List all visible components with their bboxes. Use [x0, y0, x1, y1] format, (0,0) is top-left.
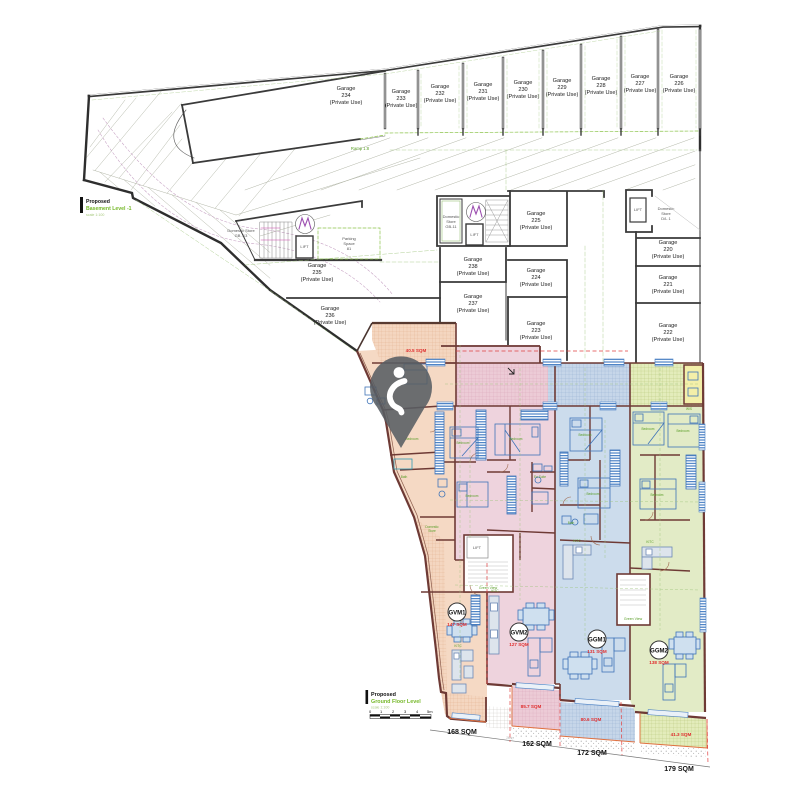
svg-text:Garage: Garage	[527, 321, 546, 327]
svg-text:127 SQM: 127 SQM	[509, 642, 529, 647]
svg-text:80.6 SQM: 80.6 SQM	[581, 717, 602, 722]
svg-text:(Private Use): (Private Use)	[424, 98, 457, 104]
svg-text:Ground Floor Level: Ground Floor Level	[371, 699, 421, 705]
svg-text:GVM1: GVM1	[448, 611, 466, 617]
svg-text:Ramp 1:8: Ramp 1:8	[351, 146, 370, 151]
svg-text:W/S: W/S	[686, 407, 692, 411]
svg-text:LIFT: LIFT	[470, 232, 479, 237]
svg-text:Garage: Garage	[659, 275, 678, 281]
svg-text:(Private Use): (Private Use)	[520, 335, 553, 341]
svg-text:Bedroom: Bedroom	[587, 492, 600, 496]
svg-text:234: 234	[341, 93, 350, 99]
svg-text:(Private Use): (Private Use)	[457, 308, 490, 314]
svg-text:Bedroom: Bedroom	[510, 437, 523, 441]
svg-text:229: 229	[557, 85, 566, 91]
svg-text:GB-11: GB-11	[445, 224, 457, 229]
svg-text:Store: Store	[428, 529, 436, 533]
svg-text:235: 235	[312, 270, 321, 276]
svg-text:GVM2: GVM2	[510, 631, 528, 637]
svg-text:(Private Use): (Private Use)	[314, 320, 347, 326]
svg-text:0: 0	[369, 709, 372, 714]
svg-text:131 SQM: 131 SQM	[587, 649, 607, 654]
svg-text:221: 221	[663, 282, 672, 288]
svg-text:Garage: Garage	[670, 74, 689, 80]
svg-text:Garage: Garage	[527, 211, 546, 217]
svg-text:(Private Use): (Private Use)	[520, 282, 553, 288]
svg-text:226: 226	[674, 81, 683, 87]
svg-text:222: 222	[663, 330, 672, 336]
svg-text:KITC: KITC	[646, 540, 654, 544]
svg-text:Garage: Garage	[514, 80, 533, 86]
svg-text:236: 236	[325, 313, 334, 319]
svg-text:16.97: 16.97	[506, 736, 515, 741]
svg-text:En Suite: En Suite	[534, 475, 546, 479]
svg-text:Garage: Garage	[659, 323, 678, 329]
svg-text:Garage: Garage	[474, 82, 493, 88]
svg-text:(Private Use): (Private Use)	[467, 96, 500, 102]
svg-text:Garage: Garage	[337, 86, 356, 92]
svg-text:2: 2	[392, 709, 395, 714]
svg-text:Garage: Garage	[553, 78, 572, 84]
svg-text:5m: 5m	[427, 709, 433, 714]
svg-text:238: 238	[468, 264, 477, 270]
svg-text:(Private Use): (Private Use)	[301, 277, 334, 283]
svg-text:(Private Use): (Private Use)	[520, 225, 553, 231]
svg-text:(Private Use): (Private Use)	[507, 94, 540, 100]
svg-text:230: 230	[518, 87, 527, 93]
svg-text:Garage: Garage	[592, 76, 611, 82]
svg-text:Proposed: Proposed	[371, 692, 396, 698]
svg-text:Garage: Garage	[659, 240, 678, 246]
svg-text:(Private Use): (Private Use)	[457, 271, 490, 277]
svg-text:(Private Use): (Private Use)	[652, 254, 685, 260]
svg-text:138 SQM: 138 SQM	[649, 660, 669, 665]
svg-text:KITC: KITC	[573, 539, 581, 543]
svg-text:(Private Use): (Private Use)	[652, 289, 685, 295]
svg-text:Bedroom: Bedroom	[677, 429, 690, 433]
svg-text:168 SQM: 168 SQM	[447, 729, 477, 736]
svg-text:Garage: Garage	[392, 89, 411, 95]
svg-text:231: 231	[478, 89, 487, 95]
svg-text:Bedroom: Bedroom	[642, 427, 655, 431]
svg-text:81: 81	[347, 246, 352, 251]
svg-text:Garage: Garage	[464, 294, 483, 300]
svg-text:85.7 SQM: 85.7 SQM	[521, 704, 542, 709]
svg-text:GB -13: GB -13	[235, 233, 248, 238]
svg-text:Bath: Bath	[568, 521, 575, 525]
svg-text:Garage: Garage	[527, 268, 546, 274]
svg-text:Basement Level -1: Basement Level -1	[86, 206, 132, 212]
svg-text:(Private Use): (Private Use)	[385, 103, 418, 109]
svg-text:41.3 SQM: 41.3 SQM	[671, 732, 692, 737]
svg-text:(Private Use): (Private Use)	[663, 88, 696, 94]
svg-text:3: 3	[404, 709, 407, 714]
svg-text:GGM2: GGM2	[650, 649, 668, 655]
svg-text:232: 232	[435, 91, 444, 97]
svg-text:Bath: Bath	[401, 475, 408, 479]
svg-text:Garage: Garage	[321, 306, 340, 312]
svg-text:(Private Use): (Private Use)	[330, 100, 363, 106]
svg-text:Bedroom: Bedroom	[457, 441, 470, 445]
svg-text:223: 223	[531, 328, 540, 334]
svg-text:Bedroom: Bedroom	[651, 493, 664, 497]
svg-text:LIFT: LIFT	[473, 545, 482, 550]
svg-text:227: 227	[635, 81, 644, 87]
svg-text:220: 220	[663, 247, 672, 253]
svg-text:233: 233	[396, 96, 405, 102]
svg-text:(Private Use): (Private Use)	[585, 90, 618, 96]
svg-text:224: 224	[531, 275, 540, 281]
svg-text:(Private Use): (Private Use)	[546, 92, 579, 98]
svg-text:(Private Use): (Private Use)	[624, 88, 657, 94]
svg-text:LIFT: LIFT	[634, 207, 643, 212]
svg-text:179 SQM: 179 SQM	[664, 766, 694, 773]
svg-text:Garage: Garage	[431, 84, 450, 90]
svg-text:Garage: Garage	[631, 74, 650, 80]
svg-text:Garage: Garage	[464, 257, 483, 263]
svg-text:40.5 SQM: 40.5 SQM	[406, 348, 427, 353]
svg-text:Proposed: Proposed	[86, 199, 110, 205]
svg-text:D/L 1: D/L 1	[661, 216, 671, 221]
svg-text:237: 237	[468, 301, 477, 307]
svg-text:scale 1:100: scale 1:100	[86, 213, 104, 217]
svg-text:Green View: Green View	[624, 617, 643, 621]
svg-text:Bedroom: Bedroom	[466, 494, 479, 498]
svg-text:Bedroom: Bedroom	[406, 437, 419, 441]
svg-text:228: 228	[596, 83, 605, 89]
svg-text:KITC: KITC	[491, 589, 499, 593]
svg-text:(Private Use): (Private Use)	[652, 337, 685, 343]
svg-text:Bedroom: Bedroom	[579, 433, 592, 437]
svg-text:4: 4	[416, 709, 419, 714]
svg-text:172 SQM: 172 SQM	[577, 750, 607, 757]
svg-text:LIFT: LIFT	[300, 244, 309, 249]
svg-text:Garage: Garage	[308, 263, 327, 269]
svg-text:225: 225	[531, 218, 540, 224]
svg-text:GGM1: GGM1	[588, 638, 606, 644]
svg-text:1: 1	[380, 709, 383, 714]
svg-text:147 SQM: 147 SQM	[447, 622, 467, 627]
svg-text:KITC: KITC	[454, 644, 462, 648]
svg-text:162 SQM: 162 SQM	[522, 741, 552, 748]
